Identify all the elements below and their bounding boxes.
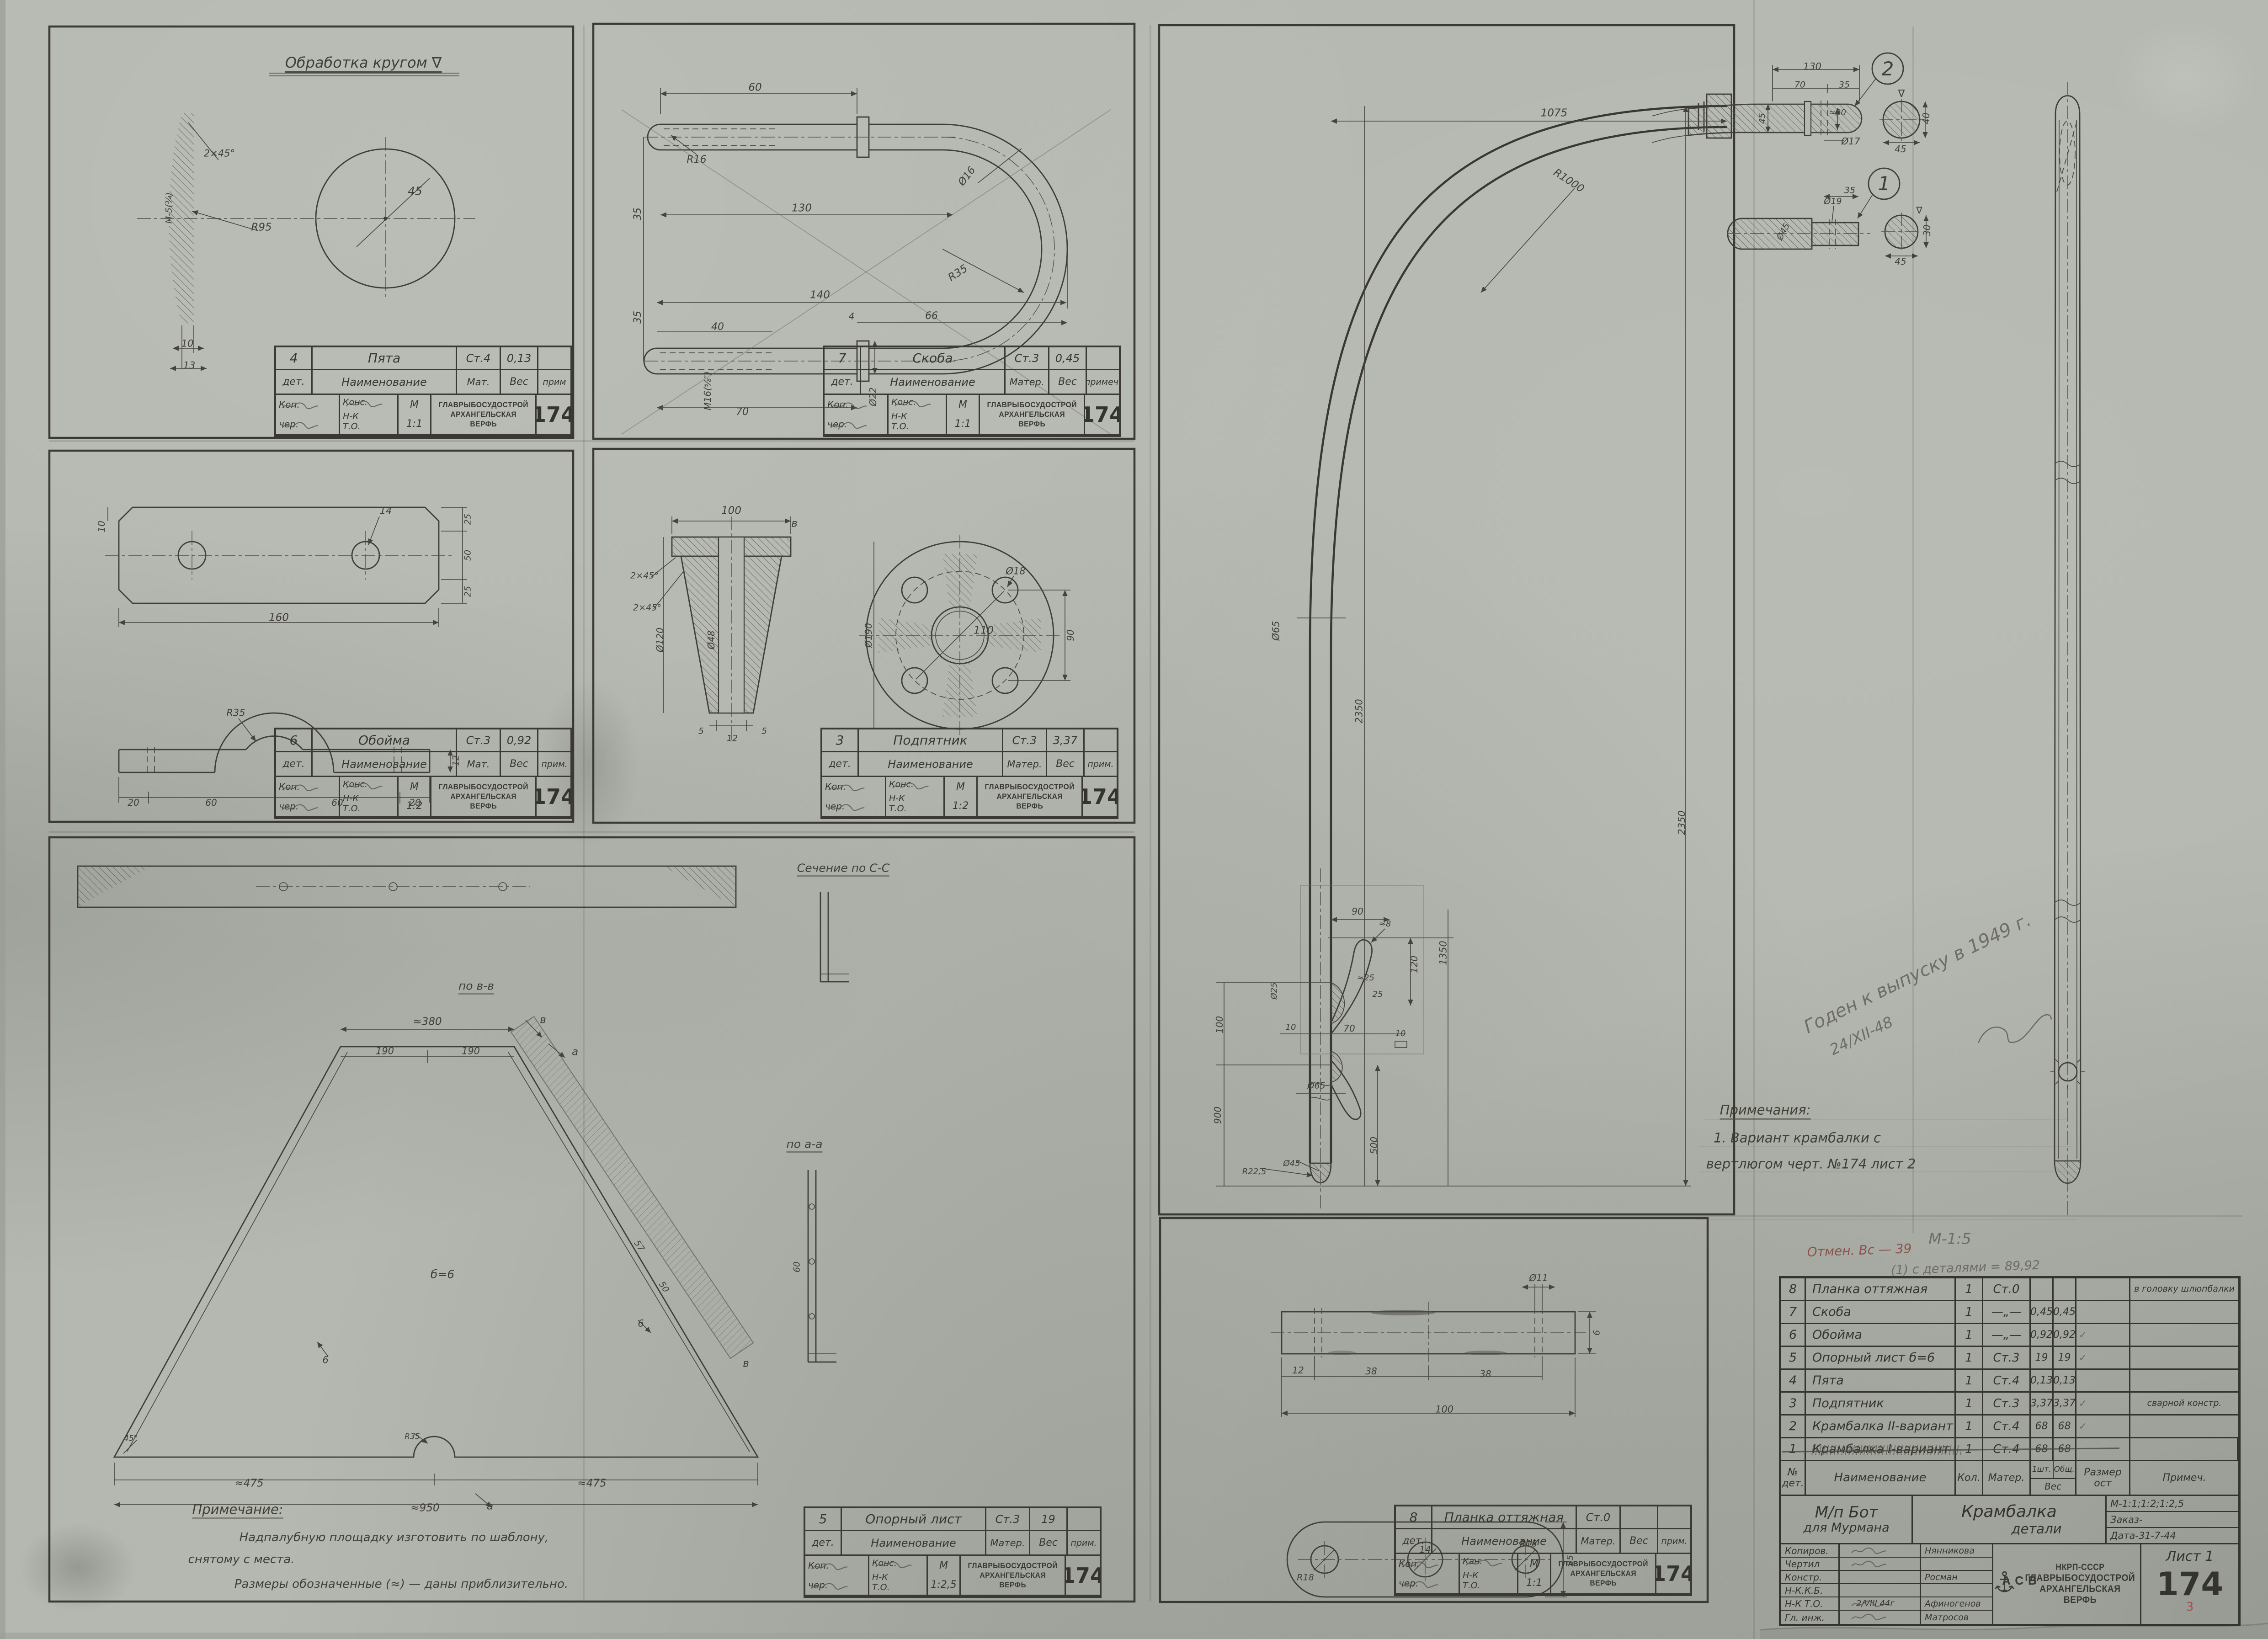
- div-c: [1621, 1506, 1658, 1529]
- dim-label: 45°: [124, 1435, 138, 1443]
- div-c: 3,37: [1047, 729, 1085, 752]
- dim-label: 6: [1593, 1330, 1602, 1336]
- dim-label: 60: [748, 83, 761, 93]
- div-c: М1:2,5: [928, 1556, 961, 1596]
- div-c: Кан.Н-КТ.О.: [1460, 1554, 1518, 1594]
- dim-label: R18: [1297, 1574, 1314, 1582]
- dim-label: ∇: [1898, 89, 1905, 99]
- div-pc: 1: [1956, 1370, 1983, 1393]
- div-org: ГЛАВРЫБОСУДОСТРОЙАРХАНГЕЛЬСКАЯВЕРФЬ: [1558, 1559, 1648, 1588]
- div: Коп.: [827, 399, 887, 410]
- div-c: Коп.чер.: [276, 395, 340, 435]
- dim-label: 2×45°: [630, 572, 659, 580]
- dim-label: 38: [1480, 1369, 1491, 1378]
- dim-label: 4: [849, 312, 855, 321]
- div: 1шт.: [2031, 1461, 2054, 1478]
- dim-label: 10: [97, 521, 106, 532]
- dim-label: 2: [1882, 59, 1894, 79]
- dim-label: R16: [687, 155, 706, 165]
- svg: [281, 400, 320, 412]
- div-srow: Н-К.К.Б.: [1781, 1584, 1838, 1597]
- div-pc: 1: [1781, 1438, 1806, 1461]
- svg: [1842, 1559, 1896, 1570]
- path: [812, 1564, 847, 1570]
- dim-label: 10: [1395, 1030, 1406, 1038]
- div-row: 3ПодпятникСт.33,37: [822, 729, 1117, 752]
- dim-label: Ø11: [1529, 1273, 1548, 1282]
- path: [876, 1562, 911, 1568]
- div-c: [1087, 347, 1119, 370]
- path: [831, 422, 867, 428]
- div-c: Наименование: [842, 1531, 986, 1556]
- div-pc: в головку шлюпбалки: [2130, 1278, 2238, 1301]
- dim-label: 70: [736, 407, 749, 417]
- div-pc: Кол.: [1956, 1461, 1983, 1496]
- div-c: ГЛАВРЫБОСУДОСТРОЙАРХАНГЕЛЬСКАЯВЕРФЬ: [431, 777, 537, 817]
- div-pc: 1: [1956, 1393, 1983, 1415]
- div-pc: [2031, 1278, 2054, 1301]
- div-c: Конс.Н-КТ.О.: [889, 395, 947, 435]
- div-row: дет.НаименованиеМат.Весприм.: [276, 752, 570, 777]
- dim-label: Ø120: [655, 628, 665, 652]
- div-pc: [2076, 1278, 2130, 1301]
- dim-label: 130: [792, 203, 812, 214]
- div-c: прим.: [538, 752, 570, 777]
- div-pc: [2130, 1347, 2238, 1370]
- div-pc: 5: [1781, 1347, 1806, 1370]
- path: [1402, 1562, 1438, 1568]
- div-pc: [2076, 1415, 2130, 1438]
- dim-label: 45: [1895, 257, 1906, 266]
- dim-label: 110: [974, 626, 994, 636]
- div-c: [1068, 1508, 1100, 1531]
- div-row: дет.НаименованиеМатер.Весприм.: [805, 1531, 1100, 1556]
- div: чер.: [808, 1580, 868, 1591]
- path: [812, 1583, 847, 1589]
- dim-label: 100: [721, 506, 741, 516]
- div-srow: Матросов: [1921, 1611, 1992, 1624]
- div-srow: Н-К Т.О.: [1781, 1597, 1838, 1611]
- div: для Мурмана: [1803, 1521, 1889, 1535]
- div-pc: 68: [2031, 1415, 2054, 1438]
- div-c: дет.: [825, 370, 861, 395]
- div-c: Вес: [501, 752, 538, 777]
- div: М: [1530, 1558, 1539, 1570]
- svg: [810, 1580, 849, 1592]
- div-c: 174: [1083, 777, 1117, 817]
- div-pc: 68✓: [2054, 1415, 2076, 1438]
- div-c: Вес: [501, 370, 538, 395]
- div-pc: 0,45: [2054, 1301, 2076, 1324]
- div: Дата-31-7-44: [2107, 1528, 2238, 1543]
- dim-label: 60: [205, 798, 217, 807]
- svg: [829, 400, 868, 412]
- dim-label: 35: [1844, 186, 1855, 195]
- div-srow: [1921, 1558, 1992, 1571]
- dim-label: Ø17: [1841, 137, 1860, 146]
- div-row: Коп.чер.Кан.Н-КТ.О.М1:1ГЛАВРЫБОСУДОСТРОЙ…: [1396, 1554, 1690, 1594]
- path: [831, 403, 867, 409]
- div-pc: Опорный лист б=6: [1806, 1347, 1956, 1370]
- dim-label: Ø19: [1824, 197, 1842, 206]
- dim-label: Ø16: [957, 165, 977, 187]
- div: М: [939, 1560, 948, 1571]
- dim-label: 500: [1369, 1137, 1379, 1154]
- div-num: 174: [2141, 1568, 2238, 1600]
- dim-label: 13: [183, 361, 196, 371]
- div-pc: М-1:1;1:2;1:2,5Заказ-Дата-31-7-44: [2107, 1496, 2238, 1544]
- div: Лист 1: [2141, 1544, 2238, 1568]
- main-title-block: 8Планка оттяжная1Ст.0в головку шлюпбалки…: [1779, 1276, 2241, 1626]
- div-c: Пята: [313, 347, 457, 370]
- div-c: Наименование: [313, 370, 457, 395]
- dim-label: Ø45: [1775, 222, 1791, 241]
- dim-label: ≈475: [577, 1479, 606, 1489]
- svg: [1464, 1557, 1504, 1569]
- div-c: ГЛАВРЫБОСУДОСТРОЙАРХАНГЕЛЬСКАЯВЕРФЬ: [980, 395, 1085, 435]
- dim-label: ≈25: [1357, 974, 1374, 982]
- div-c: Конс.Н-КТ.О.: [340, 395, 399, 435]
- div-sgl: Копиров.ЧертилКонстр.Н-К.К.Б.Н-К Т.О.Гл.…: [1781, 1544, 1840, 1624]
- div-pc: [2130, 1370, 2238, 1393]
- dim-label: ≈950: [410, 1503, 439, 1514]
- div-c: 5: [805, 1508, 842, 1531]
- div-srow: [1840, 1584, 1920, 1597]
- path: [346, 783, 382, 789]
- div-c: М1:2: [399, 777, 431, 817]
- path: [895, 401, 931, 407]
- dim-label: 30: [1922, 224, 1932, 236]
- svg: [345, 780, 384, 792]
- svg: [345, 398, 384, 410]
- div-pc: 0,13: [2054, 1370, 2076, 1393]
- div-c: 174: [537, 777, 570, 817]
- div-pc: Ст.3: [1983, 1393, 2031, 1415]
- div: Лист 11743: [2141, 1544, 2238, 1624]
- div-srow: Копиров.: [1781, 1544, 1838, 1558]
- div: М: [410, 781, 419, 793]
- dim-label: 35: [633, 311, 643, 324]
- dim-label: 190: [376, 1047, 394, 1056]
- div-pc: Размерост: [2076, 1461, 2130, 1496]
- dim-label: 25: [464, 514, 473, 525]
- div-pc: Матер.: [1983, 1461, 2031, 1496]
- div: 1:1: [406, 418, 422, 430]
- div-strike2: [1810, 1445, 1961, 1455]
- svg: [827, 802, 866, 814]
- div: М: [410, 399, 419, 410]
- div: Конс.: [889, 779, 943, 789]
- div-row: Коп.чер.Конс.Н-КТ.О.М1:2,5ГЛАВРЫБОСУДОСТ…: [805, 1556, 1100, 1596]
- svg: [1842, 1612, 1896, 1623]
- div-row: Коп.чер.Конс.Н-КТ.О.М1:1ГЛАВРЫБОСУДОСТРО…: [825, 395, 1119, 435]
- path: [282, 804, 318, 810]
- div-c: Коп.чер.: [1396, 1554, 1460, 1594]
- dim-label: Ø190: [864, 623, 873, 648]
- dim-label: 190: [462, 1047, 480, 1056]
- parts-row-4: 4Пята1Ст.40,130,13: [1781, 1370, 2238, 1393]
- dim-label: а: [487, 1501, 493, 1512]
- dim-label: ≈8: [1379, 920, 1391, 928]
- svg: [1400, 1559, 1440, 1571]
- div-pc: Ст.4: [1983, 1415, 2031, 1438]
- div-srow: [1840, 1611, 1920, 1624]
- div-row: 6ОбоймаСт.30,92: [276, 729, 570, 752]
- dim-label: 10: [181, 339, 194, 349]
- div-c: 4: [276, 347, 313, 370]
- div-c: Вес: [1047, 752, 1085, 777]
- div-c: Коп.чер.: [276, 777, 340, 817]
- dim-label: 60: [793, 1261, 802, 1272]
- dim-label: Примечания:: [1720, 1104, 1811, 1120]
- dim-label: Ø65: [1272, 621, 1281, 640]
- dim-label: 57: [632, 1239, 645, 1253]
- div-pc: 1: [1956, 1415, 1983, 1438]
- dim-label: 40: [711, 322, 724, 332]
- div-c: Коп.чер.: [825, 395, 889, 435]
- div: 1:2: [406, 800, 422, 812]
- div-pc: 7: [1781, 1301, 1806, 1324]
- dim-label: 90: [1066, 629, 1075, 641]
- dim-label: 70: [1794, 81, 1805, 90]
- div-pc: Ст.4: [1983, 1370, 2031, 1393]
- svg: [874, 1559, 913, 1571]
- div-c: 7: [825, 347, 861, 370]
- div-c: Вес: [1030, 1531, 1068, 1556]
- div-c: Ст.0: [1577, 1506, 1621, 1529]
- parts-row-1: 1Крамбалка I-вариант1Ст.46868: [1781, 1438, 2238, 1461]
- div-srow: Гл. инж.: [1781, 1611, 1838, 1624]
- parts-row-6: 6Обойма1—„—0,920,92✓: [1781, 1324, 2238, 1347]
- dim-label: 50: [657, 1280, 670, 1294]
- dim-label: 100: [1215, 1016, 1224, 1033]
- dim-label: 90: [1352, 907, 1363, 916]
- svg: [281, 782, 320, 794]
- div-c: 174: [1066, 1556, 1100, 1596]
- path: [282, 403, 318, 409]
- div: Крамбалка: [1961, 1502, 2057, 1521]
- parts-header-row: №дет.НаименованиеКол.Матер.1шт.Общ.ВесРа…: [1781, 1461, 2238, 1496]
- div: 1:2: [953, 800, 969, 812]
- div-c: прим.: [1658, 1529, 1690, 1554]
- dim-label: по а-а: [786, 1139, 822, 1153]
- div-row: 4ПятаСт.40,13: [276, 347, 570, 370]
- dim-label: ≈380: [413, 1017, 442, 1027]
- dim-label: 160: [269, 613, 289, 623]
- div-c: 0,13: [501, 347, 538, 370]
- div-c: дет.: [276, 370, 313, 395]
- div-c: Конс.Н-КТ.О.: [340, 777, 399, 817]
- dim-label: 45: [1895, 144, 1906, 154]
- div: 1:1: [955, 418, 971, 430]
- dim-label: 12: [727, 734, 738, 743]
- div-c: [538, 729, 570, 752]
- dim-label: Ø18: [1006, 567, 1025, 576]
- div-c: Коп.чер.: [805, 1556, 869, 1596]
- div-pc: 1: [1956, 1347, 1983, 1370]
- svg: [893, 398, 932, 410]
- dim-label: 2×45°: [633, 604, 661, 612]
- div-c: Мат.: [457, 370, 501, 395]
- div: детали: [2012, 1521, 2062, 1537]
- div-row: дет.НаименованиеМатер.Весприм.: [822, 752, 1117, 777]
- path: [346, 401, 382, 407]
- div-pc: 8: [1781, 1278, 1806, 1301]
- div-srow: Нянникова: [1921, 1544, 1992, 1558]
- dim-label: (1) с деталями = 89,92: [1890, 1259, 2040, 1277]
- title-block-4: 4ПятаСт.40,13дет.НаименованиеМат.Весприм…: [274, 346, 572, 437]
- dim-label: R35: [405, 1433, 420, 1441]
- div: Коп.: [825, 781, 885, 792]
- div-sgl: НянниковаРосманАфиногеновМатросов: [1921, 1544, 1993, 1624]
- div-c: Мат.: [457, 752, 501, 777]
- path: [1466, 1560, 1502, 1566]
- shipyard-logo: НКРП-СССРГЛАВРЫБОСУДОСТРОЙАРХАНГЕЛЬСКАЯВ…: [1993, 1544, 2141, 1624]
- div-pc: [2130, 1415, 2238, 1438]
- div-c: 174: [537, 395, 570, 435]
- div-pc: 1: [1956, 1278, 1983, 1301]
- path: [829, 785, 864, 791]
- parts-row-3: 3Подпятник1Ст.33,373,37✓сварной констр.: [1781, 1393, 2238, 1415]
- div-c: ГЛАВРЫБОСУДОСТРОЙАРХАНГЕЛЬСКАЯВЕРФЬ: [978, 777, 1083, 817]
- div-pc: [2076, 1438, 2130, 1461]
- svg: [810, 1561, 849, 1573]
- div-row: дет.НаименованиеМатер.Весприм.: [1396, 1529, 1690, 1554]
- div: М/п Бот: [1815, 1504, 1878, 1521]
- dim-label: 12: [1292, 1366, 1304, 1375]
- div-pc: 6: [1781, 1324, 1806, 1347]
- svg: [1842, 1545, 1896, 1556]
- div-c: Наименование: [1432, 1529, 1577, 1554]
- div: Конс.: [872, 1558, 926, 1568]
- svg: [281, 802, 320, 814]
- div-c: 3: [822, 729, 859, 752]
- div-pc: Примеч.: [2130, 1461, 2238, 1496]
- dim-label: 10: [1286, 1023, 1296, 1032]
- div-c: Наименование: [313, 752, 457, 777]
- div-srow: Афиногенов: [1921, 1597, 1992, 1611]
- dim-label: Примечание:: [192, 1503, 283, 1519]
- parts-row-5: 5Опорный лист б=61Ст.31919✓: [1781, 1347, 2238, 1370]
- div-c: Конс.Н-КТ.О.: [869, 1556, 928, 1596]
- dim-label: Ø25: [1270, 982, 1278, 999]
- div-pc: 0,92✓: [2054, 1324, 2076, 1347]
- div-c: М1:1: [947, 395, 980, 435]
- dim-label: в: [743, 1359, 749, 1369]
- div-c: 6: [276, 729, 313, 752]
- dim-label: в: [540, 1015, 546, 1026]
- dim-label: ≈475: [234, 1479, 263, 1489]
- dim-label: 38: [1365, 1367, 1377, 1376]
- div: Конс.: [343, 397, 397, 407]
- div-srow: [1921, 1584, 1992, 1597]
- div-pc: 0,45: [2031, 1301, 2054, 1324]
- div-c: Планка оттяжная: [1432, 1506, 1577, 1529]
- div-c: дет.: [822, 752, 859, 777]
- svg: [281, 420, 320, 431]
- div-c: Опорный лист: [842, 1508, 986, 1531]
- div-row: Коп.чер.Конс.Н-КТ.О.М1:2ГЛАВРЫБОСУДОСТРО…: [822, 777, 1117, 817]
- div-org: ВЕРФЬ: [2025, 1595, 2135, 1606]
- svg: [1400, 1579, 1440, 1591]
- path: [1852, 1614, 1886, 1620]
- div: Н-КТ.О.: [343, 793, 361, 814]
- div-c: Вес: [1049, 370, 1087, 395]
- dim-label: 50: [464, 550, 473, 561]
- dim-label: 100: [1435, 1405, 1453, 1415]
- div: Н-КТ.О.: [872, 1572, 890, 1592]
- svg: [827, 782, 866, 794]
- div: Вес: [2044, 1479, 2061, 1495]
- div-c: Наименование: [859, 752, 1003, 777]
- div-c: дет.: [805, 1531, 842, 1556]
- dim-label: Обработка кругом ∇: [285, 55, 442, 73]
- div-c: Вес: [1621, 1529, 1658, 1554]
- div-c: Коп.чер.: [822, 777, 886, 817]
- div-pc: Наименование: [1806, 1461, 1956, 1496]
- div-sgl: 2/VIII 44г: [1840, 1544, 1921, 1624]
- dim-label: 120: [1410, 956, 1419, 973]
- div: чер.: [827, 419, 887, 430]
- div: Н-КТ.О.: [1463, 1570, 1480, 1591]
- div: М: [958, 399, 967, 410]
- dim-label: 2350: [1355, 699, 1364, 723]
- div-row: 7СкобаСт.30,45: [825, 347, 1119, 370]
- div-c: М1:1: [1518, 1554, 1551, 1594]
- div-pc: Крамбалка I-вариант: [1806, 1438, 1956, 1461]
- div-pc: Подпятник: [1806, 1393, 1956, 1415]
- div-c: [1658, 1506, 1690, 1529]
- title-block-8: 8Планка оттяжнаяСт.0дет.НаименованиеМате…: [1394, 1505, 1692, 1596]
- div-pc: 0,13: [2031, 1370, 2054, 1393]
- div-pc: Скоба: [1806, 1301, 1956, 1324]
- div-org: ГЛАВРЫБОСУДОСТРОЙАРХАНГЕЛЬСКАЯВЕРФЬ: [438, 782, 528, 811]
- div-c: Обойма: [313, 729, 457, 752]
- dim-label: 1075: [1541, 108, 1568, 119]
- div-pc: №дет.: [1781, 1461, 1806, 1496]
- dim-label: вертлюгом черт. №174 лист 2: [1706, 1158, 1916, 1171]
- logo-letters: АСВ: [2000, 1574, 2044, 1588]
- div: Н-КТ.О.: [343, 411, 361, 431]
- div: Кан.: [1463, 1556, 1517, 1566]
- dim-label: R35: [226, 708, 245, 718]
- div: М: [956, 781, 965, 793]
- div-org: ГЛАВРЫБОСУДОСТРОЙАРХАНГЕЛЬСКАЯВЕРФЬ: [968, 1561, 1057, 1590]
- div-c: примеч.: [1087, 370, 1119, 395]
- div: чер.: [825, 801, 885, 812]
- div: чер.: [279, 419, 339, 430]
- dim-label: М-1:5: [1928, 1231, 1971, 1246]
- path: [893, 783, 928, 789]
- title-block-6: 6ОбоймаСт.30,92дет.НаименованиеМат.Веспр…: [274, 728, 572, 819]
- dim-label: 130: [1803, 62, 1821, 72]
- div-pc: [2076, 1347, 2130, 1370]
- div-pc: Ст.3: [1983, 1347, 2031, 1370]
- div-c: 174: [1085, 395, 1119, 435]
- div-org: ГЛАВРЫБОСУДОСТРОЙАРХАНГЕЛЬСКАЯВЕРФЬ: [987, 400, 1076, 429]
- div: 1:1: [1526, 1577, 1542, 1589]
- div-c: М1:2: [945, 777, 978, 817]
- div-srow: [1840, 1571, 1920, 1584]
- svg: [891, 780, 930, 792]
- div-srow: Констр.: [1781, 1571, 1838, 1584]
- dim-label: 66: [925, 311, 938, 321]
- div: Конс.: [343, 779, 397, 789]
- dim-label: R95: [251, 223, 272, 233]
- dim-label: 45: [1758, 113, 1767, 124]
- div-org: ГЛАВРЫБОСУДОСТРОЙАРХАНГЕЛЬСКАЯВЕРФЬ: [985, 782, 1074, 811]
- dim-label: 25: [1373, 990, 1383, 999]
